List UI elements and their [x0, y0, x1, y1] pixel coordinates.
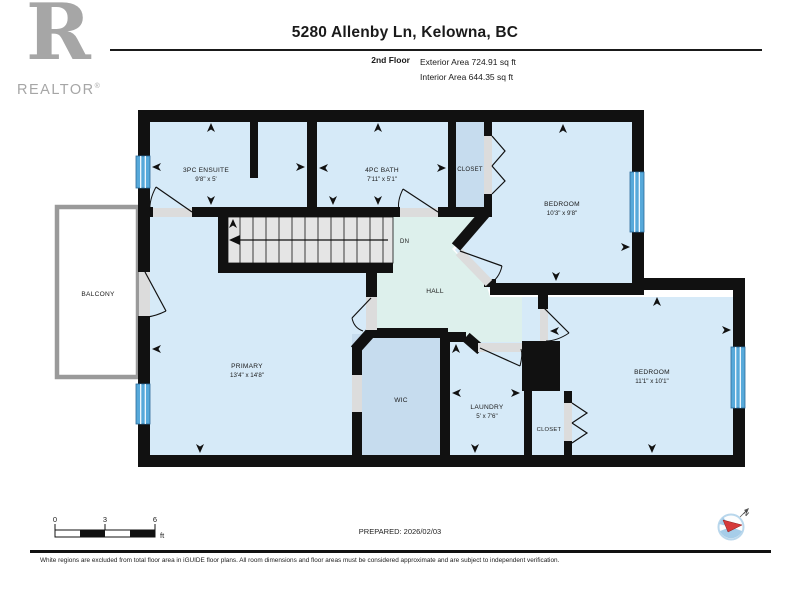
scale-tick-3: 3 [103, 515, 107, 524]
bath-door-opening [400, 208, 438, 217]
room-ensuite [144, 116, 312, 214]
label-wic: WIC [394, 397, 408, 404]
closet-top-bifold-opening [484, 136, 492, 194]
label-bedroom1-dims: 10'3" x 9'8" [547, 210, 578, 217]
closet-bottom-bifold-opening [564, 403, 572, 441]
label-ensuite: 3PC ENSUITE [183, 167, 229, 174]
staircase [228, 217, 393, 263]
window-bedroom2 [731, 347, 745, 408]
disclaimer-text: White regions are excluded from total fl… [40, 557, 640, 564]
prepared-date: PREPARED: 2026/02/03 [0, 527, 800, 536]
label-stairs-dn: DN [400, 239, 409, 245]
label-hall: HALL [426, 288, 444, 295]
floorplan-drawing: 3PC ENSUITE 9'8" x 5' 4PC BATH 7'11" x 5… [0, 0, 800, 600]
label-ensuite-dims: 9'8" x 5' [195, 176, 216, 183]
label-bath: 4PC BATH [365, 167, 399, 174]
label-bedroom1: BEDROOM [544, 201, 580, 208]
window-ensuite [136, 156, 150, 188]
window-bedroom1 [630, 172, 644, 232]
void-block [522, 341, 560, 391]
scale-tick-6: 6 [153, 515, 157, 524]
window-primary [136, 384, 150, 424]
label-bath-dims: 7'11" x 5'1" [367, 176, 397, 183]
label-bedroom2-dims: 11'1" x 10'1" [635, 378, 668, 385]
ensuite-door-opening [153, 208, 192, 217]
label-balcony: BALCONY [81, 291, 115, 298]
room-laundry [448, 342, 524, 455]
scale-tick-0: 0 [53, 515, 57, 524]
label-laundry-dims: 5' x 7'6" [476, 413, 497, 420]
floorplan-page: R REALTOR® 5280 Allenby Ln, Kelowna, BC … [0, 0, 800, 600]
label-closet-top: CLOSET [457, 167, 483, 173]
room-wic [352, 334, 448, 455]
wic-doorway-opening [352, 375, 362, 412]
label-bedroom2: BEDROOM [634, 369, 670, 376]
label-primary: PRIMARY [231, 363, 263, 370]
compass-north-label: N [742, 510, 750, 519]
label-laundry: LAUNDRY [470, 404, 503, 411]
bedroom2-door-opening [540, 309, 548, 341]
label-primary-dims: 13'4" x 14'8" [230, 372, 264, 379]
footer-divider [30, 550, 771, 553]
label-closet-bottom: CLOSET [537, 427, 562, 433]
